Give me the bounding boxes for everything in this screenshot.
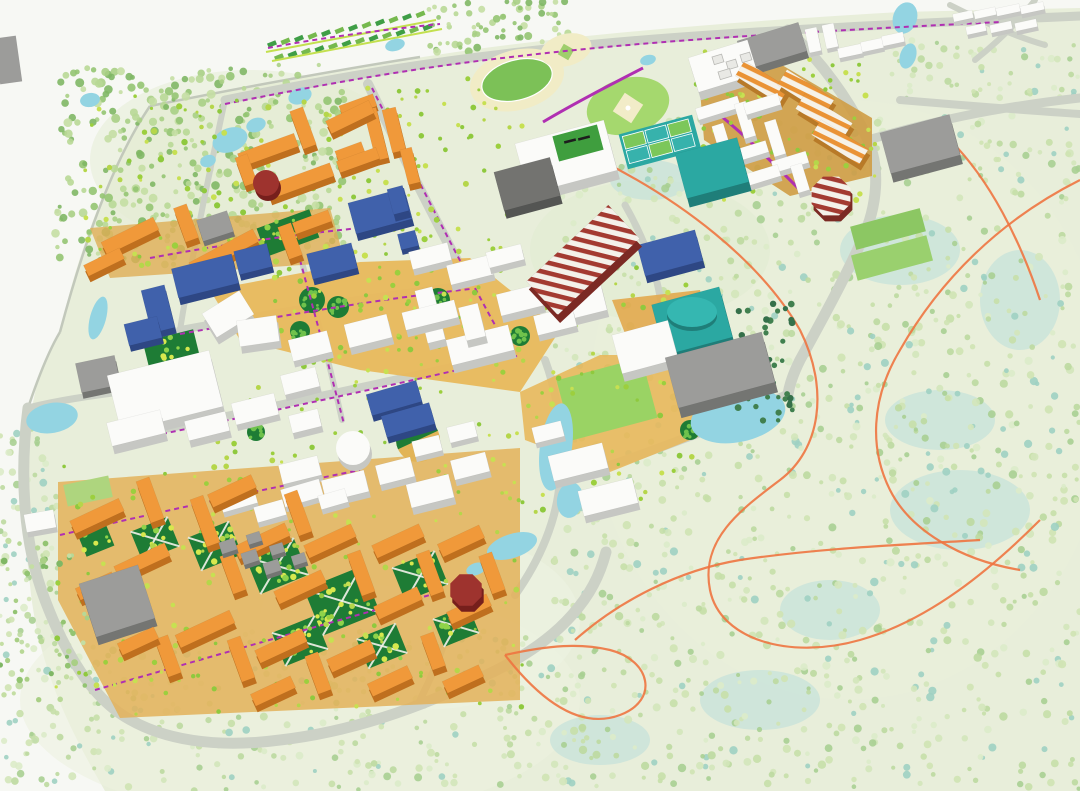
tree-dot	[967, 373, 972, 378]
tree-dot	[63, 72, 70, 79]
tree-dot	[581, 739, 586, 744]
campus-tree-dot	[465, 76, 470, 81]
grove-dot	[295, 332, 298, 335]
tree-dot	[89, 187, 97, 195]
tree-dot	[1024, 440, 1032, 448]
tree-dot	[527, 763, 533, 769]
tree-dot	[856, 405, 863, 412]
campus-tree-dot	[346, 582, 351, 587]
tree-dot	[570, 691, 577, 698]
tree-dot	[610, 734, 616, 740]
campus-tree-dot	[337, 355, 342, 360]
park-tree-dot	[277, 579, 281, 583]
tree-dot	[615, 612, 623, 620]
tree-dot	[551, 597, 558, 604]
campus-tree-dot	[275, 704, 278, 707]
tree-dot	[226, 72, 235, 81]
campus-tree-dot	[81, 640, 86, 645]
garden-plot	[375, 19, 385, 27]
tree-dot	[483, 27, 489, 33]
tree-dot	[524, 32, 532, 40]
tree-dot	[1008, 112, 1015, 119]
tree-dot	[572, 354, 579, 361]
tree-dot	[95, 748, 102, 755]
tree-dot	[636, 281, 641, 286]
tree-dot	[514, 762, 522, 770]
park-tree-dot	[168, 525, 174, 531]
tree-dot	[804, 515, 810, 521]
tree-dot	[824, 681, 831, 688]
tree-dot	[1035, 381, 1040, 386]
tree-dot	[703, 738, 708, 743]
campus-tree-dot	[398, 114, 402, 118]
tree-dot	[1075, 477, 1079, 481]
tree-dot	[756, 631, 763, 638]
park-tree-dot	[160, 353, 166, 359]
campus-tree-dot	[857, 63, 861, 67]
tree-dot	[657, 622, 662, 627]
tree-dot	[968, 177, 972, 181]
campus-tree-dot	[384, 252, 388, 256]
tree-dot	[55, 209, 60, 214]
tree-dot	[817, 302, 822, 307]
campus-tree-dot	[216, 190, 221, 195]
tree-dot	[679, 683, 686, 690]
tree-dot	[804, 595, 810, 601]
campus-tree-dot	[442, 102, 446, 106]
tree-dot	[320, 719, 327, 726]
campus-tree-dot	[363, 632, 369, 638]
campus-tree-dot	[12, 691, 16, 695]
tree-dot	[1060, 284, 1065, 289]
tree-dot	[1016, 488, 1022, 494]
tree-dot	[561, 742, 567, 748]
tree-dot	[163, 104, 169, 110]
tree-dot	[752, 537, 757, 542]
tree-dot	[984, 142, 991, 149]
tree-dot	[423, 720, 427, 724]
tree-dot	[903, 771, 911, 779]
campus-tree-dot	[338, 197, 343, 202]
tree-dot	[1063, 196, 1068, 201]
tree-dot	[936, 62, 943, 69]
tree-dot	[228, 67, 233, 72]
campus-tree-dot	[5, 538, 11, 544]
campus-tree-dot	[455, 668, 460, 673]
campus-tree-dot	[379, 306, 384, 311]
campus-tree-dot	[333, 431, 337, 435]
tree-dot	[838, 631, 846, 639]
tree-dot	[120, 186, 127, 193]
campus-tree-dot	[516, 347, 522, 353]
tree-dot	[1070, 631, 1076, 637]
tree-dot	[571, 629, 575, 633]
tree-dot	[834, 581, 842, 589]
tree-dot	[146, 204, 154, 212]
campus-tree-dot	[428, 206, 434, 212]
campus-tree-dot	[160, 671, 163, 674]
tree-dot	[853, 423, 861, 431]
tree-dot	[440, 6, 447, 13]
tree-dot	[748, 576, 752, 580]
tree-dot	[861, 489, 866, 494]
tree-dot	[206, 98, 210, 102]
tree-dot	[65, 94, 69, 98]
campus-tree-dot	[784, 391, 790, 397]
tree-dot	[1018, 769, 1023, 774]
tree-dot	[563, 525, 571, 533]
campus-tree-dot	[617, 471, 621, 475]
tree-dot	[881, 669, 886, 674]
park-tree-dot	[382, 656, 388, 662]
tree-dot	[811, 230, 817, 236]
tree-dot	[149, 118, 157, 126]
tree-dot	[239, 191, 247, 199]
campus-tree-dot	[823, 87, 827, 91]
tree-dot	[978, 704, 986, 712]
tree-dot	[791, 433, 798, 440]
tree-dot	[743, 587, 750, 594]
campus-tree-dot	[49, 671, 54, 676]
tree-dot	[561, 730, 567, 736]
tree-dot	[724, 705, 731, 712]
tree-dot	[689, 566, 694, 571]
campus-tree-dot	[570, 391, 575, 396]
campus-tree-dot	[397, 348, 401, 352]
tree-dot	[473, 44, 481, 52]
campus-tree-dot	[235, 99, 239, 103]
tree-dot	[984, 726, 992, 734]
tree-dot	[670, 515, 676, 521]
tree-dot	[957, 131, 964, 138]
tree-dot	[931, 722, 937, 728]
campus-tree-dot	[436, 359, 439, 362]
tree-dot	[38, 776, 44, 782]
tree-dot	[806, 212, 811, 217]
campus-tree-dot	[416, 212, 420, 216]
tree-dot	[859, 557, 866, 564]
tree-dot	[937, 456, 944, 463]
campus-tree-dot	[419, 671, 423, 675]
tree-dot	[883, 673, 890, 680]
campus-tree-dot	[58, 653, 62, 657]
tree-dot	[858, 361, 863, 366]
tree-dot	[160, 93, 169, 102]
campus-tree-dot	[495, 530, 499, 534]
campus-tree-dot	[640, 305, 646, 311]
tree-dot	[61, 99, 69, 107]
tree-dot	[884, 459, 891, 466]
tree-dot	[853, 583, 858, 588]
tree-dot	[0, 433, 3, 438]
campus-tree-dot	[643, 490, 647, 494]
tree-dot	[240, 68, 248, 76]
tree-dot	[1072, 166, 1080, 174]
tree-dot	[1062, 269, 1068, 275]
tree-dot	[1005, 410, 1013, 418]
campus-tree-dot	[521, 359, 525, 363]
tree-dot	[419, 740, 423, 744]
campus-tree-dot	[617, 463, 620, 466]
tree-dot	[66, 755, 71, 760]
tree-dot	[926, 648, 931, 653]
tree-dot	[844, 492, 852, 500]
tree-dot	[972, 259, 979, 266]
tree-dot	[701, 642, 705, 646]
campus-tree-dot	[196, 674, 200, 678]
tree-dot	[988, 410, 996, 418]
tree-dot	[319, 128, 328, 137]
tree-dot	[992, 583, 999, 590]
tree-dot	[788, 240, 794, 246]
campus-tree-dot	[770, 301, 776, 307]
grove-dot	[517, 339, 522, 344]
tree-dot	[1012, 528, 1020, 536]
campus-tree-dot	[802, 67, 806, 71]
campus-tree-dot	[783, 306, 788, 311]
tree-dot	[1022, 152, 1029, 159]
tree-dot	[801, 392, 805, 396]
tree-dot	[650, 235, 656, 241]
campus-tree-dot	[457, 490, 461, 494]
campus-tree-dot	[204, 481, 209, 486]
tree-dot	[918, 43, 925, 50]
tree-dot	[500, 14, 506, 20]
tree-dot	[497, 781, 504, 788]
tree-dot	[531, 716, 537, 722]
tree-dot	[769, 772, 775, 778]
building-roof	[336, 431, 370, 465]
tree-dot	[986, 316, 991, 321]
tree-dot	[1029, 344, 1035, 350]
tree-dot	[658, 496, 666, 504]
campus-tree-dot	[199, 115, 202, 118]
campus-tree-dot	[364, 293, 368, 297]
tree-dot	[836, 488, 841, 493]
tree-dot	[190, 138, 194, 142]
campus-tree-dot	[665, 290, 670, 295]
campus-tree-dot	[185, 186, 191, 192]
tree-dot	[592, 649, 597, 654]
tree-dot	[636, 608, 641, 613]
tree-dot	[825, 395, 832, 402]
tree-dot	[580, 671, 586, 677]
tree-dot	[171, 92, 178, 99]
tree-dot	[902, 321, 909, 328]
tree-dot	[72, 189, 79, 196]
campus-tree-dot	[856, 72, 860, 76]
tree-dot	[1022, 594, 1027, 599]
tree-dot	[918, 781, 923, 786]
tree-dot	[719, 276, 724, 281]
tree-dot	[526, 660, 532, 666]
tree-dot	[781, 675, 788, 682]
tree-dot	[911, 487, 915, 491]
grove-dot	[342, 298, 348, 304]
tree-dot	[187, 192, 195, 200]
tree-dot	[1065, 283, 1073, 291]
tree-dot	[432, 5, 437, 10]
tree-dot	[746, 453, 753, 460]
tree-dot	[930, 504, 938, 512]
tree-dot	[848, 700, 852, 704]
campus-tree-dot	[438, 137, 442, 141]
tree-dot	[967, 215, 972, 220]
garden-plot	[348, 24, 358, 32]
tree-dot	[280, 755, 286, 761]
campus-tree-dot	[736, 308, 742, 314]
tree-dot	[758, 534, 765, 541]
tree-dot	[441, 780, 449, 788]
tree-dot	[30, 645, 37, 652]
campus-tree-dot	[556, 375, 562, 381]
tree-dot	[633, 745, 637, 749]
campus-tree-dot	[513, 559, 517, 563]
tree-dot	[465, 0, 471, 6]
tree-dot	[24, 612, 31, 619]
tree-dot	[1053, 496, 1058, 501]
tree-dot	[96, 251, 100, 255]
tree-dot	[638, 713, 643, 718]
campus-tree-dot	[783, 396, 788, 401]
tree-dot	[258, 202, 263, 207]
campus-tree-dot	[780, 339, 785, 344]
campus-tree-dot	[814, 160, 819, 165]
tree-dot	[826, 723, 832, 729]
tree-dot	[883, 518, 889, 524]
campus-tree-dot	[97, 107, 102, 112]
tree-dot	[632, 692, 638, 698]
tree-dot	[1070, 757, 1075, 762]
campus-tree-dot	[415, 227, 419, 231]
tree-dot	[1038, 150, 1043, 155]
tree-dot	[955, 46, 959, 50]
campus-tree-dot	[419, 112, 424, 117]
garden-plot	[389, 16, 399, 24]
tree-dot	[228, 720, 235, 727]
tree-dot	[984, 361, 990, 367]
tree-dot	[58, 205, 62, 209]
tree-dot	[1047, 473, 1052, 478]
tree-dot	[651, 654, 658, 661]
tree-dot	[882, 323, 890, 331]
campus-tree-dot	[614, 282, 617, 285]
park-tree-dot	[81, 547, 86, 552]
tree-dot	[182, 92, 190, 100]
tree-dot	[599, 590, 607, 598]
tree-dot	[0, 485, 5, 490]
tree-dot	[734, 274, 739, 279]
grove-dot	[259, 432, 264, 437]
tree-dot	[1042, 746, 1048, 752]
tree-dot	[624, 716, 632, 724]
tree-dot	[33, 473, 38, 478]
campus-tree-dot	[287, 267, 292, 272]
tree-dot	[196, 753, 200, 757]
hedge-line	[266, 20, 436, 52]
tree-dot	[36, 668, 41, 673]
campus-tree-dot	[829, 86, 832, 89]
tree-dot	[35, 436, 40, 441]
tree-dot	[334, 716, 338, 720]
tree-dot	[754, 289, 762, 297]
tree-dot	[971, 454, 976, 459]
tree-dot	[267, 120, 272, 125]
tree-dot	[904, 179, 911, 186]
tree-dot	[371, 760, 378, 767]
tree-dot	[594, 784, 598, 788]
tree-dot	[124, 192, 129, 197]
campus-tree-dot	[145, 261, 151, 267]
tree-dot	[546, 675, 550, 679]
tree-dot	[329, 781, 336, 788]
park-tree-dot	[141, 532, 146, 537]
tree-dot	[454, 11, 459, 16]
tree-dot	[1045, 213, 1051, 219]
campus-tree-dot	[831, 63, 835, 67]
tree-dot	[629, 275, 633, 279]
tree-dot	[10, 439, 17, 446]
building-roof	[450, 574, 481, 605]
campus-tree-dot	[460, 125, 464, 129]
tree-dot	[825, 656, 831, 662]
tree-dot	[688, 649, 694, 655]
tree-dot	[859, 627, 867, 635]
tree-dot	[926, 497, 934, 505]
tree-dot	[452, 3, 457, 8]
tree-dot	[967, 684, 974, 691]
tree-dot	[17, 770, 25, 778]
tree-dot	[883, 524, 888, 529]
tree-dot	[1058, 660, 1066, 668]
tree-dot	[803, 637, 810, 644]
tree-dot	[547, 664, 555, 672]
tree-dot	[164, 202, 171, 209]
tree-dot	[1027, 88, 1033, 94]
tree-dot	[1, 519, 6, 524]
tree-dot	[871, 733, 877, 739]
tree-dot	[980, 519, 988, 527]
tree-dot	[5, 449, 12, 456]
tree-dot	[794, 667, 801, 674]
tree-dot	[596, 740, 601, 745]
campus-tree-dot	[240, 209, 246, 215]
tree-dot	[873, 318, 880, 325]
campus-tree-dot	[776, 410, 782, 416]
tree-dot	[970, 125, 975, 130]
tree-dot	[503, 726, 507, 730]
tree-dot	[27, 597, 32, 602]
layer-garden-rows	[266, 11, 442, 62]
tree-dot	[961, 247, 965, 251]
campus-tree-dot	[856, 79, 860, 83]
tree-dot	[1063, 178, 1070, 185]
tree-dot	[788, 290, 792, 294]
tree-dot	[125, 73, 133, 81]
tree-dot	[968, 424, 974, 430]
tree-dot	[903, 576, 907, 580]
tree-dot	[319, 110, 324, 115]
tree-dot	[161, 777, 167, 783]
tree-dot	[874, 342, 882, 350]
campus-tree-dot	[515, 431, 519, 435]
campus-tree-dot	[726, 93, 730, 97]
tree-dot	[196, 75, 204, 83]
tree-dot	[659, 480, 666, 487]
campus-tree-dot	[198, 656, 201, 659]
tree-dot	[35, 628, 41, 634]
tree-dot	[1039, 772, 1045, 778]
